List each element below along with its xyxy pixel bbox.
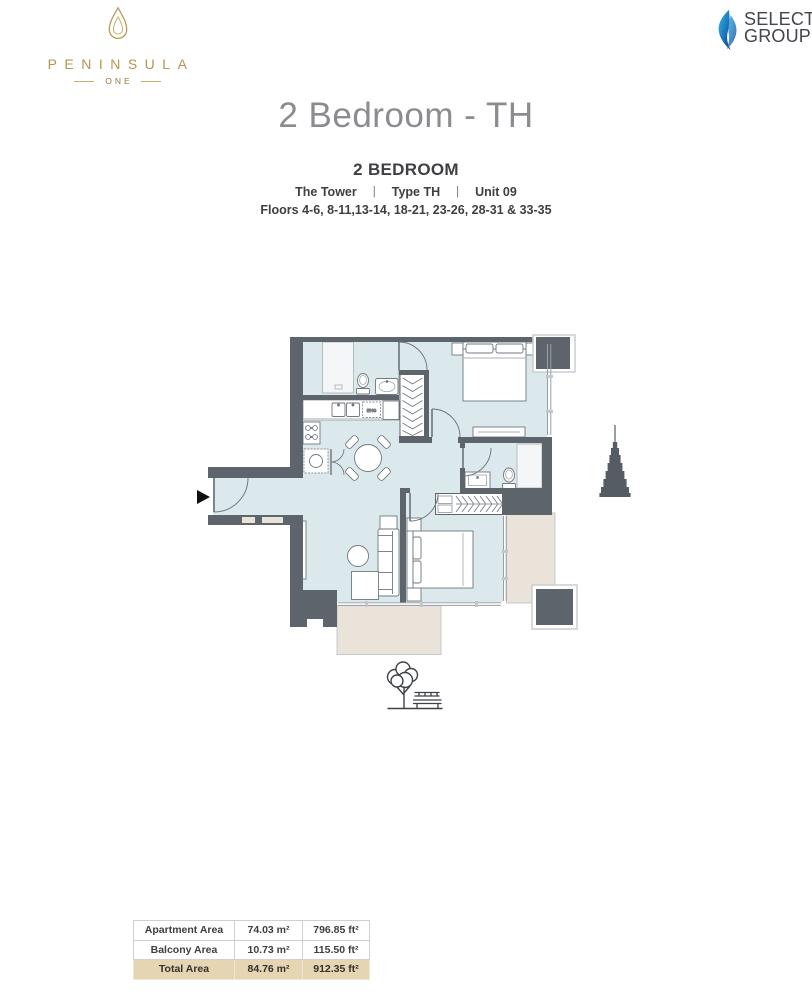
select-logo-text: SELECT GROUP — [744, 11, 812, 44]
table-row: Apartment Area 74.03 m² 796.85 ft² — [134, 921, 370, 941]
kitchen-appliance-label: EHG — [367, 408, 377, 413]
pillow — [413, 561, 421, 583]
floor-plan: EHG — [195, 325, 635, 725]
peninsula-one-logo: PENINSULA ONE — [15, 6, 220, 86]
unit-type: Type TH — [392, 185, 440, 199]
select-group-logo: SELECT GROUP — [716, 8, 812, 52]
select-logo-line2: GROUP — [744, 28, 812, 45]
area-sqft: 115.50 ft² — [303, 940, 370, 960]
tree-bench-icon — [388, 662, 443, 709]
area-sqm: 10.73 m² — [235, 940, 303, 960]
pillow — [466, 344, 493, 353]
stove — [303, 422, 320, 444]
pillow — [496, 344, 523, 353]
dining-table — [355, 445, 382, 472]
nightstand — [407, 588, 421, 601]
pillow — [413, 537, 421, 559]
balcony-bottom — [337, 606, 441, 655]
column-bottom-right — [532, 585, 577, 629]
unit-meta-row: The Tower | Type TH | Unit 09 — [0, 185, 812, 199]
table-row-total: Total Area 84.76 m² 912.35 ft² — [134, 960, 370, 980]
wall-notch — [307, 619, 323, 627]
nightstand — [452, 343, 463, 355]
coffee-table — [348, 546, 369, 567]
logo-rule-left — [74, 81, 94, 82]
linen-closet — [400, 374, 425, 437]
wall-niche — [262, 517, 283, 523]
bed-2 — [413, 531, 473, 588]
peninsula-logo-sub: ONE — [102, 76, 132, 86]
entry-arrow-icon — [197, 490, 210, 504]
logo-rule-right — [141, 81, 161, 82]
area-sqm: 74.03 m² — [235, 921, 303, 941]
column-top-right — [533, 335, 575, 372]
ottoman — [352, 572, 379, 600]
side-table — [380, 516, 397, 529]
divider: | — [373, 186, 376, 198]
area-sqft: 912.35 ft² — [303, 960, 370, 980]
toilet-2 — [503, 468, 516, 489]
sofa — [378, 529, 399, 596]
area-table: Apartment Area 74.03 m² 796.85 ft² Balco… — [133, 920, 370, 980]
peninsula-logo-text: PENINSULA — [15, 56, 220, 72]
unit-info-block: 2 BEDROOM The Tower | Type TH | Unit 09 … — [0, 160, 812, 217]
sink-1 — [376, 379, 399, 395]
fridge — [383, 401, 399, 420]
vanity-2 — [465, 472, 490, 489]
washing-machine — [304, 449, 328, 473]
area-sqft: 796.85 ft² — [303, 921, 370, 941]
select-flame-icon — [716, 8, 740, 52]
toilet-1 — [357, 374, 370, 395]
area-label: Apartment Area — [134, 921, 235, 941]
unit-heading: 2 BEDROOM — [0, 160, 812, 180]
peninsula-pin-icon — [104, 6, 132, 48]
unit-number: Unit 09 — [475, 185, 517, 199]
burj-khalifa-icon — [599, 425, 630, 497]
area-label: Balcony Area — [134, 940, 235, 960]
bed-1 — [463, 349, 526, 401]
area-sqm: 84.76 m² — [235, 960, 303, 980]
unit-tower: The Tower — [295, 185, 357, 199]
shower-2 — [517, 444, 542, 488]
wall-niche — [242, 517, 255, 523]
divider: | — [456, 186, 459, 198]
page-title: 2 Bedroom - TH — [0, 96, 812, 136]
area-label: Total Area — [134, 960, 235, 980]
bench — [414, 693, 442, 709]
wardrobe — [436, 494, 503, 515]
table-row: Balcony Area 10.73 m² 115.50 ft² — [134, 940, 370, 960]
unit-floors: Floors 4-6, 8-11,13-14, 18-21, 23-26, 28… — [0, 203, 812, 217]
